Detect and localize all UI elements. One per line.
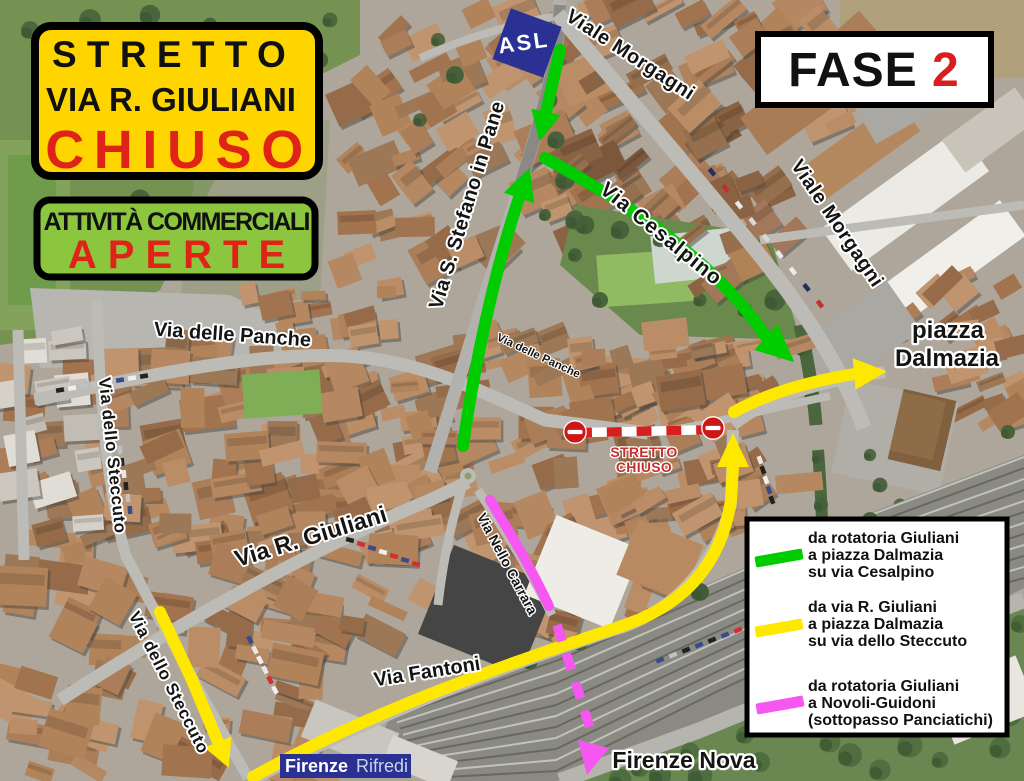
svg-text:ATTIVITÀ COMMERCIALI: ATTIVITÀ COMMERCIALI [44,207,311,236]
svg-text:da rotatoria Giuliani: da rotatoria Giuliani [808,678,959,695]
svg-text:VIA R. GIULIANI: VIA R. GIULIANI [46,81,296,118]
svg-text:piazza: piazza [912,317,985,344]
svg-text:Dalmazia: Dalmazia [895,345,1000,372]
svg-text:CHIUSO: CHIUSO [45,120,313,180]
svg-text:STRETTO: STRETTO [610,444,677,460]
svg-text:su via dello Steccuto: su via dello Steccuto [808,633,967,650]
svg-text:FASE 2: FASE 2 [788,44,959,97]
svg-text:Rifredi: Rifredi [356,756,408,776]
svg-text:CHIUSO: CHIUSO [616,459,672,475]
svg-text:STRETTO: STRETTO [52,34,296,75]
svg-text:a piazza Dalmazia: a piazza Dalmazia [808,616,943,633]
svg-text:a Novoli-Guidoni: a Novoli-Guidoni [808,695,936,712]
svg-text:da via R. Giuliani: da via R. Giuliani [808,599,937,616]
svg-text:a piazza Dalmazia: a piazza Dalmazia [808,547,943,564]
svg-text:Firenze: Firenze [285,756,348,776]
svg-text:Firenze Nova: Firenze Nova [612,747,755,773]
svg-text:APERTE: APERTE [68,233,296,277]
svg-text:da rotatoria Giuliani: da rotatoria Giuliani [808,530,959,547]
svg-text:(sottopasso Panciatichi): (sottopasso Panciatichi) [808,712,993,729]
svg-text:su via Cesalpino: su via Cesalpino [808,564,934,581]
